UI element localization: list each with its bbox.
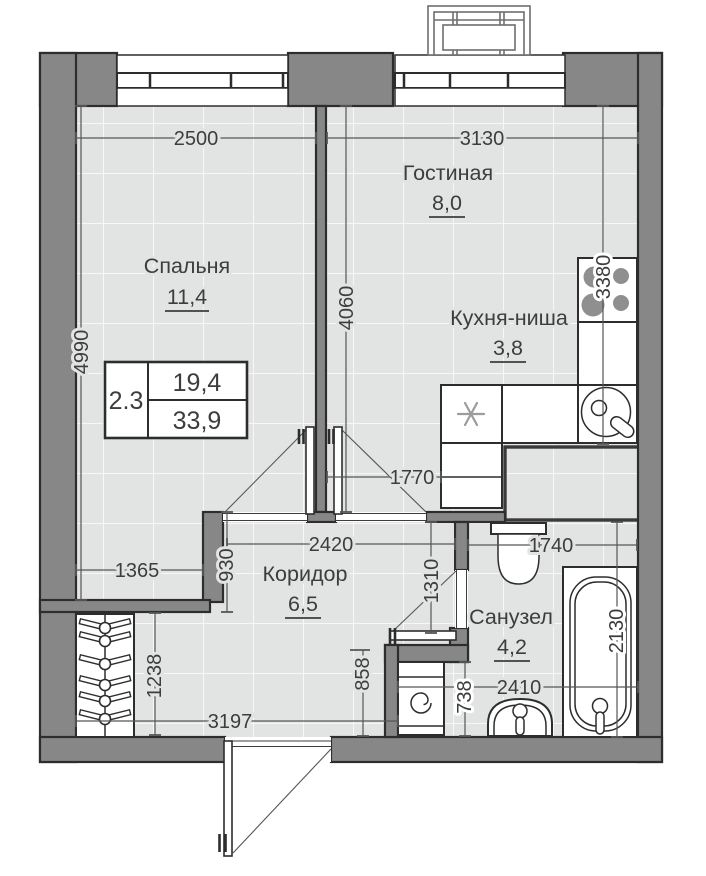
wall-bath-left-upper — [455, 522, 468, 570]
stamp-left-value: 2.3 — [109, 387, 144, 415]
threshold-entry-door — [225, 737, 331, 762]
dim-1740: 1740 — [529, 535, 574, 557]
stamp-top-right-value: 19,4 — [173, 369, 222, 397]
dim-1238: 1238 — [144, 654, 166, 699]
kitchen-label: Кухня-ниша — [450, 306, 568, 330]
wardrobe-zone — [505, 447, 640, 520]
floor-plan: 2500 3130 4990 4060 3380 1770 2420 930 1… — [0, 0, 706, 876]
threshold-bathroom-door — [455, 570, 468, 628]
wall-partition-bedroom-living — [316, 106, 326, 512]
dim-3197: 3197 — [208, 711, 253, 733]
window-living — [395, 55, 565, 106]
corridor-area: 6,5 — [288, 592, 318, 616]
corridor-label: Коридор — [263, 562, 348, 586]
bathroom-sink — [488, 699, 552, 736]
living-area: 8,0 — [432, 191, 462, 215]
dim-2420: 2420 — [309, 534, 354, 556]
burner-icon — [613, 268, 629, 284]
wall-left — [40, 53, 76, 762]
living-label: Гостиная — [403, 161, 493, 185]
dim-1770: 1770 — [390, 467, 435, 489]
bathroom-label: Санузел — [469, 605, 553, 629]
dim-1365: 1365 — [115, 560, 160, 582]
wall-top-center-pier — [288, 53, 393, 106]
dim-738: 738 — [454, 680, 476, 713]
washing-machine — [398, 662, 444, 735]
bedroom-label: Спальня — [144, 254, 230, 278]
wall-bottom-right — [331, 737, 662, 762]
dim-930: 930 — [216, 548, 238, 581]
stamp: 2.3 19,4 33,9 — [105, 362, 247, 438]
threshold-living-door — [336, 512, 426, 522]
kitchen-cabinet — [578, 322, 637, 385]
bathroom-area: 4,2 — [497, 635, 527, 659]
window-bedroom — [117, 55, 288, 106]
wall-corridor-bath-top — [426, 512, 505, 522]
coat-rack — [76, 614, 134, 737]
burner-icon — [613, 295, 629, 311]
floor-plan-page: 2500 3130 4990 4060 3380 1770 2420 930 1… — [0, 0, 706, 876]
wall-right — [638, 53, 662, 762]
wall-niche-left — [385, 645, 398, 737]
dim-4060: 4060 — [336, 286, 358, 331]
wall-bottom-left — [40, 737, 225, 762]
dim-1310: 1310 — [421, 559, 443, 604]
dim-2130: 2130 — [606, 609, 628, 654]
kitchen-area: 3,8 — [493, 336, 523, 360]
ac-basket — [428, 6, 530, 55]
dim-3380: 3380 — [593, 255, 615, 300]
stamp-bottom-right-value: 33,9 — [173, 407, 222, 435]
wall-bedroom-lower — [40, 600, 210, 612]
bedroom-area: 11,4 — [167, 285, 207, 309]
dim-2410: 2410 — [497, 677, 542, 699]
dim-3130: 3130 — [460, 128, 505, 150]
dim-858: 858 — [352, 657, 374, 690]
dim-2500: 2500 — [174, 128, 219, 150]
dim-4990: 4990 — [71, 330, 93, 375]
threshold-bedroom-door — [223, 512, 307, 522]
